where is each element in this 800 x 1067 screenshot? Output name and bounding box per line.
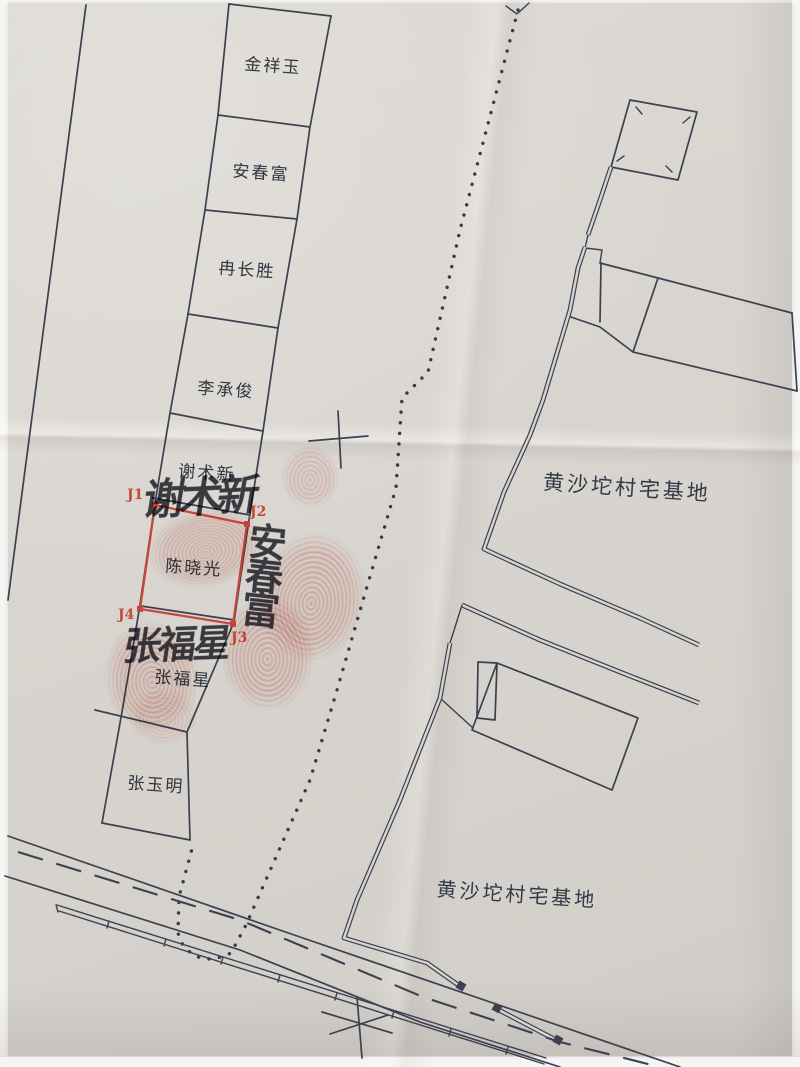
parcel-label: 冉长胜 xyxy=(218,254,277,283)
parcel-divider xyxy=(205,210,297,219)
road-edge-line-upper xyxy=(8,836,680,1067)
corner-marker-j4 xyxy=(137,606,143,612)
parcel-strip-left-edge xyxy=(102,4,229,823)
boundary-wall-upper xyxy=(484,247,699,645)
wall-from-square xyxy=(588,167,611,235)
parcel-strip-bottom-edge xyxy=(102,823,190,840)
left-boundary-line xyxy=(8,5,86,600)
survey-cross-center xyxy=(309,411,368,468)
corner-label-j1: J1 xyxy=(127,487,143,503)
signature-an-chunfu: 安春富 xyxy=(229,519,294,626)
photo-of-site-plan: 金祥玉 安春富 冉长胜 李承俊 谢术新 陈晓光 张福星 张玉明 黄沙坨村宅基地 … xyxy=(0,0,800,1067)
parcel-divider xyxy=(218,115,310,127)
parcel-divider xyxy=(95,710,187,732)
site-plan-drawing xyxy=(0,0,800,1067)
railway-strip xyxy=(56,905,546,1064)
parcel-strip-right-edge xyxy=(187,16,331,840)
parcel-strip-top-edge xyxy=(229,4,331,16)
parcel-label: 李承俊 xyxy=(197,374,256,403)
parcel-label: 安春富 xyxy=(232,157,291,186)
wall-descending-bottom xyxy=(344,643,466,991)
parcel-divider xyxy=(170,413,263,431)
parcel-label-highlighted: 陈晓光 xyxy=(165,552,224,581)
parcel-label: 金祥玉 xyxy=(244,50,303,79)
corner-tick-marks xyxy=(617,107,690,172)
building-outline-square xyxy=(611,100,697,180)
building-rooms-top-right xyxy=(568,235,797,391)
parcel-strip xyxy=(95,4,331,840)
signature-zhang-fuxing: 张福星 xyxy=(120,612,233,671)
building-rectangles-mid xyxy=(472,662,638,790)
parcel-divider xyxy=(188,314,278,328)
parcel-label: 张玉明 xyxy=(127,769,186,798)
corner-label-j3: J3 xyxy=(231,630,247,646)
signature-xie-shuxin: 谢术新 xyxy=(139,461,260,528)
boundary-wall-lower xyxy=(462,605,699,703)
